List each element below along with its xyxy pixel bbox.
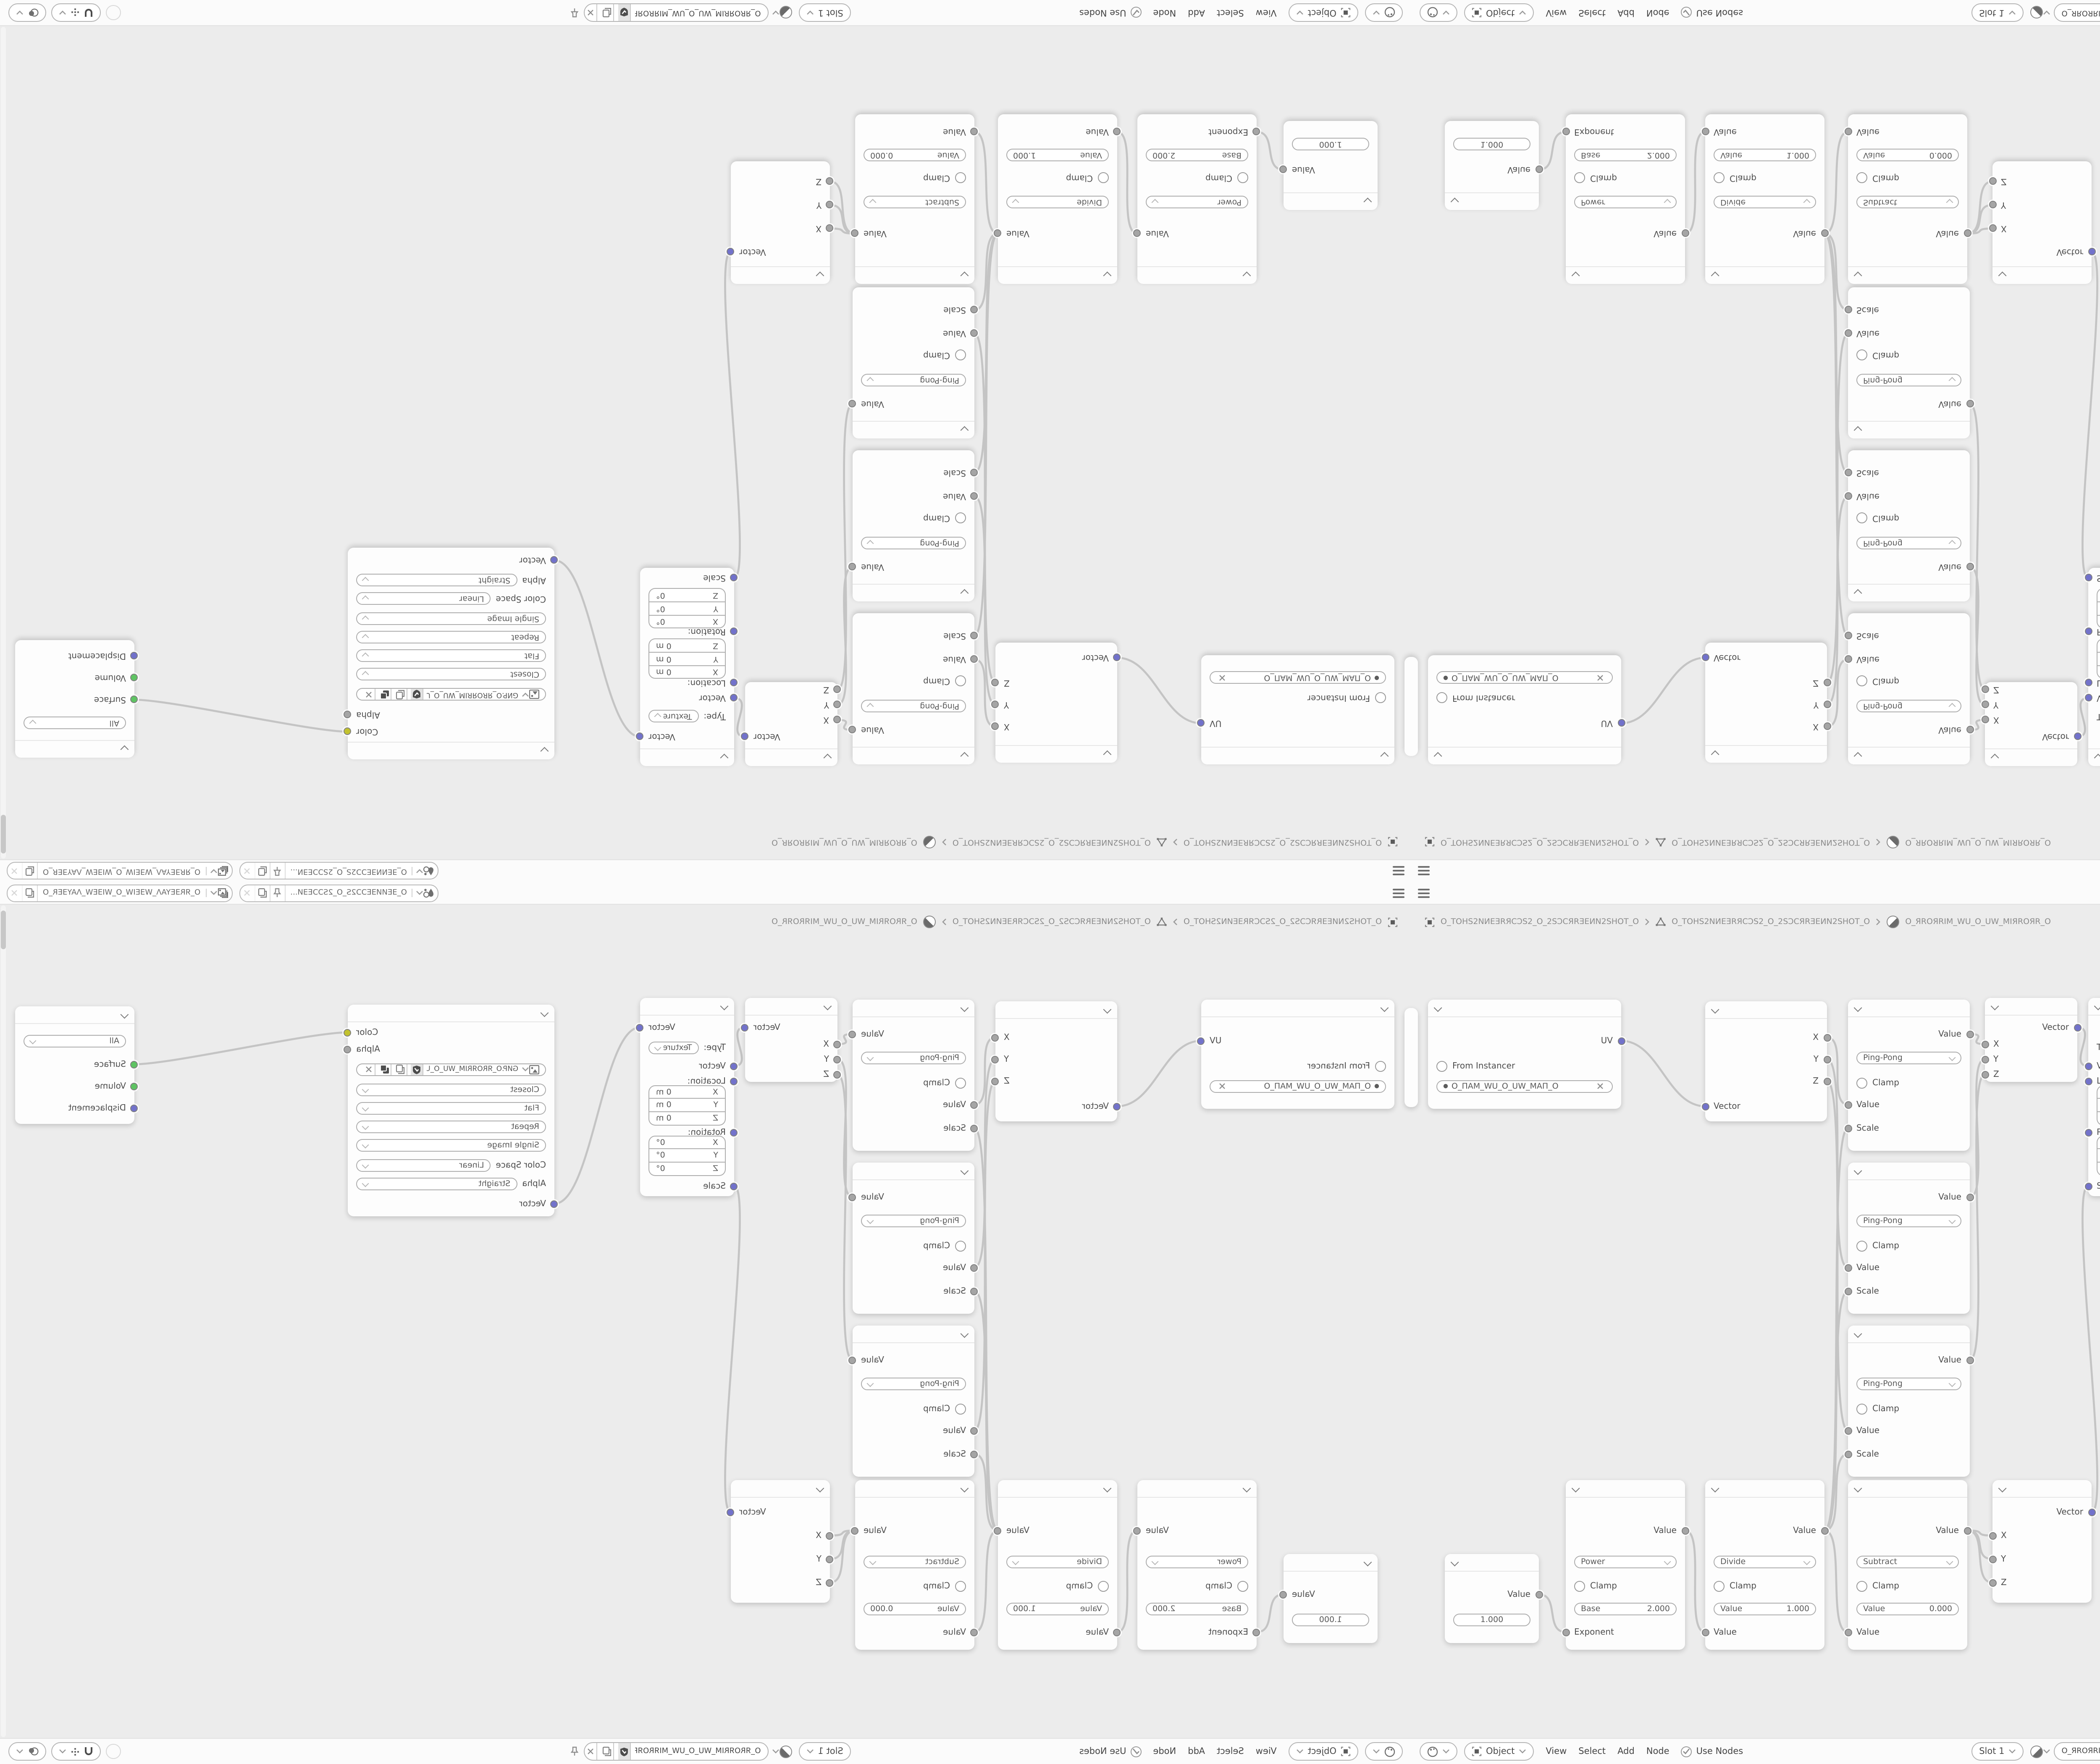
node-header[interactable] bbox=[995, 745, 1117, 763]
node-header[interactable] bbox=[1284, 1554, 1378, 1572]
number-field[interactable]: 1.000 bbox=[1453, 138, 1530, 151]
socket-vector[interactable] bbox=[1701, 1102, 1709, 1110]
socket-z[interactable] bbox=[1981, 1071, 1989, 1078]
node-header[interactable] bbox=[1705, 266, 1824, 284]
scrollbar-vertical[interactable] bbox=[1, 906, 6, 1737]
value-node[interactable]: Value1.000 bbox=[1284, 121, 1378, 210]
separate-xyz-node[interactable]: XYZVector bbox=[995, 1001, 1117, 1121]
combine-xyz-node[interactable]: VectorXYZ bbox=[1985, 998, 2077, 1082]
view-layer-unlink-button[interactable] bbox=[8, 863, 23, 879]
vector-component-field[interactable]: Z0° bbox=[2097, 588, 2100, 601]
clear-button[interactable] bbox=[1216, 672, 1228, 683]
separate-xyz-node[interactable]: XYZVector bbox=[1705, 643, 1827, 763]
node-header[interactable] bbox=[348, 1005, 554, 1022]
math-power-node[interactable]: ValuePowerClampBase2.000Exponent bbox=[1566, 114, 1685, 284]
clear-button[interactable] bbox=[1594, 672, 1606, 683]
enum-dropdown[interactable]: Subtract bbox=[864, 196, 966, 209]
node-header[interactable] bbox=[995, 1001, 1117, 1019]
scene-selector[interactable]: O_ƎEИИƎEƆƆ2S_O_2SƆƆEƎИ... bbox=[239, 884, 439, 902]
image-texture-node[interactable]: ColorAlphaGИP.O_ЯROЯRIM_WU_O_UW_MIЯROЯR_… bbox=[348, 548, 554, 759]
fake-user-button[interactable] bbox=[618, 4, 630, 21]
socket-value[interactable] bbox=[1963, 1527, 1971, 1534]
socket-value[interactable] bbox=[1821, 1527, 1828, 1534]
checkbox[interactable] bbox=[1856, 1580, 1867, 1591]
math-power-node[interactable]: ValuePowerClampBase2.000Exponent bbox=[1137, 114, 1257, 284]
material-slot-dropdown[interactable]: Slot 1 bbox=[1971, 1742, 2024, 1761]
number-field[interactable]: Base2.000 bbox=[1146, 149, 1248, 162]
partial-node[interactable] bbox=[1404, 657, 1411, 756]
node-header[interactable] bbox=[745, 748, 837, 766]
menu-select[interactable]: Select bbox=[1217, 1746, 1244, 1756]
vector-component-field[interactable]: Z0 m bbox=[2097, 638, 2100, 652]
view-layer-selector[interactable]: O_ЯRƎEYAΛ_WƎEIW_O_WIƎEW_ΛAYƎER_O bbox=[7, 884, 232, 902]
pin-button[interactable] bbox=[570, 8, 578, 18]
enum-dropdown[interactable]: All bbox=[24, 1034, 126, 1047]
enum-dropdown[interactable]: Power bbox=[1146, 1555, 1248, 1568]
socket-value[interactable] bbox=[1681, 1527, 1689, 1534]
number-field[interactable]: Value0.000 bbox=[864, 149, 966, 162]
editor-type-button[interactable] bbox=[1420, 1742, 1457, 1761]
scrollbar-vertical[interactable] bbox=[1, 27, 6, 858]
socket-vector[interactable] bbox=[2088, 1508, 2095, 1516]
menu-select[interactable]: Select bbox=[1217, 8, 1244, 18]
vector-component-field[interactable]: Y0° bbox=[648, 1149, 726, 1163]
scene-unlink-button[interactable] bbox=[240, 863, 255, 879]
math-pingpong-z-node[interactable]: ValuePing-PongClampValueScale bbox=[853, 1326, 974, 1477]
combine-xyz-bottom-node[interactable]: VectorXYZ bbox=[731, 161, 830, 284]
vector-component-field[interactable]: Y0 m bbox=[2097, 652, 2100, 665]
socket-z[interactable] bbox=[1989, 1579, 1996, 1586]
partial-node[interactable] bbox=[1404, 1008, 1411, 1107]
enum-dropdown[interactable]: Subtract bbox=[864, 1555, 966, 1568]
material-datablock-field[interactable]: O_ЯROЯRIM_WU_O_UW_MIЯROЯR_O bbox=[583, 1742, 768, 1761]
number-field[interactable]: Base2.000 bbox=[1574, 149, 1677, 162]
enum-dropdown[interactable]: Ping-Pong bbox=[861, 537, 966, 550]
node-header[interactable] bbox=[731, 1480, 830, 1498]
uv-map-node[interactable]: UVFrom InstancerO_ПAM_WU_O_UW_MAП_O bbox=[1201, 655, 1394, 764]
socket-value[interactable] bbox=[1844, 1427, 1852, 1434]
uv-map-selector[interactable]: O_ПAM_WU_O_UW_MAП_O bbox=[1210, 1080, 1386, 1092]
checkbox[interactable] bbox=[955, 513, 966, 524]
editor-overlays-dropdown[interactable] bbox=[8, 1742, 46, 1761]
use-nodes-checkbox[interactable]: Use Nodes bbox=[1681, 7, 1743, 18]
mapping-node[interactable]: VectorType:TextureVectorLocation:X0 mY0 … bbox=[2088, 568, 2100, 766]
enum-dropdown[interactable]: Single Image bbox=[356, 1139, 546, 1151]
checkbox[interactable] bbox=[955, 350, 966, 361]
node-header[interactable] bbox=[1137, 1480, 1257, 1498]
node-header[interactable] bbox=[1848, 266, 1967, 284]
vector-component-field[interactable]: Z0° bbox=[648, 1163, 726, 1176]
node-header[interactable] bbox=[640, 748, 734, 766]
view-layer-unlink-button[interactable] bbox=[8, 885, 23, 901]
vector-component-field[interactable]: Y0 m bbox=[648, 652, 726, 665]
use-nodes-checkbox[interactable]: Use Nodes bbox=[1079, 1746, 1142, 1757]
enum-dropdown[interactable]: Ping-Pong bbox=[1856, 1214, 1961, 1227]
number-field[interactable]: Value0.000 bbox=[864, 1602, 966, 1615]
math-subtract-node[interactable]: ValueSubtractClampValue0.000Value bbox=[1848, 114, 1967, 284]
node-header[interactable] bbox=[731, 266, 830, 284]
number-field[interactable]: Value1.000 bbox=[1006, 1602, 1109, 1615]
node-header[interactable] bbox=[640, 998, 734, 1016]
checkbox[interactable] bbox=[1436, 1060, 1447, 1071]
node-header[interactable] bbox=[1428, 1000, 1621, 1017]
checkbox[interactable] bbox=[1574, 173, 1585, 184]
number-field[interactable]: Value1.000 bbox=[1006, 149, 1109, 162]
separate-xyz-node[interactable]: XYZVector bbox=[995, 643, 1117, 763]
node-header[interactable] bbox=[853, 747, 974, 764]
enum-dropdown[interactable]: Ping-Pong bbox=[861, 1051, 966, 1064]
enum-dropdown[interactable]: Flat bbox=[356, 1102, 546, 1114]
node-header[interactable] bbox=[998, 1480, 1117, 1498]
number-field[interactable]: Value1.000 bbox=[1714, 1602, 1816, 1615]
node-header[interactable] bbox=[745, 998, 837, 1016]
math-divide-node[interactable]: ValueDivideClampValue1.000Value bbox=[998, 1480, 1117, 1650]
socket-value[interactable] bbox=[1701, 1628, 1709, 1636]
node-header[interactable] bbox=[1848, 1480, 1967, 1498]
number-field[interactable]: 1.000 bbox=[1292, 1613, 1369, 1626]
snapping-controls[interactable] bbox=[51, 3, 101, 22]
editor-type-button[interactable] bbox=[1365, 1742, 1403, 1761]
material-datablock-field[interactable]: O_ЯROЯRIM_WU_O_UW_MIЯROЯR_O bbox=[583, 3, 768, 22]
uv-map-selector[interactable]: O_ПAM_WU_O_UW_MAП_O bbox=[1436, 1080, 1613, 1092]
number-field[interactable]: Base2.000 bbox=[1146, 1602, 1248, 1615]
number-field[interactable]: Base2.000 bbox=[1574, 1602, 1677, 1615]
math-pingpong-x-node[interactable]: ValuePing-PongClampValueScale bbox=[853, 613, 974, 764]
node-header[interactable] bbox=[1705, 1480, 1824, 1498]
socket-value[interactable] bbox=[1844, 1264, 1852, 1271]
enum-dropdown[interactable]: Single Image bbox=[356, 613, 546, 625]
math-divide-node[interactable]: ValueDivideClampValue1.000Value bbox=[1705, 114, 1824, 284]
enum-dropdown[interactable]: Ping-Pong bbox=[1856, 374, 1961, 387]
socket-uv[interactable] bbox=[1617, 1037, 1625, 1045]
socket-location[interactable] bbox=[2084, 1077, 2092, 1085]
checkbox[interactable] bbox=[1375, 693, 1386, 703]
view-layer-copy-button[interactable] bbox=[23, 863, 38, 879]
checkbox[interactable] bbox=[955, 1403, 966, 1414]
menu-select[interactable]: Select bbox=[1578, 8, 1606, 18]
uv-map-selector[interactable]: O_ПAM_WU_O_UW_MAП_O bbox=[1210, 672, 1386, 684]
menu-node[interactable]: Node bbox=[1153, 1746, 1176, 1756]
enum-dropdown[interactable]: All bbox=[24, 717, 126, 730]
socket-value[interactable] bbox=[1844, 1101, 1852, 1108]
node-header[interactable] bbox=[853, 1326, 974, 1343]
value-node[interactable]: Value1.000 bbox=[1284, 1554, 1378, 1643]
copy-material-button[interactable] bbox=[601, 1743, 614, 1760]
value-node[interactable]: Value1.000 bbox=[1445, 1554, 1539, 1643]
math-subtract-node[interactable]: ValueSubtractClampValue0.000Value bbox=[855, 1480, 974, 1650]
use-nodes-checkbox[interactable]: Use Nodes bbox=[1681, 1746, 1743, 1757]
topbar-menu-button[interactable] bbox=[1418, 866, 1430, 876]
math-subtract-node[interactable]: ValueSubtractClampValue0.000Value bbox=[855, 114, 974, 284]
socket-value[interactable] bbox=[1844, 1628, 1852, 1636]
material-datablock-field[interactable]: O_ЯROЯRIM_WU_O_UW_MIЯROЯR_O bbox=[2054, 1742, 2100, 1761]
socket-value[interactable] bbox=[1966, 1030, 1974, 1038]
node-header[interactable] bbox=[1445, 1554, 1539, 1572]
checkbox[interactable] bbox=[1856, 173, 1867, 184]
fake-user-button[interactable] bbox=[618, 1743, 630, 1760]
node-header[interactable] bbox=[853, 1000, 974, 1017]
socket-scale[interactable] bbox=[1844, 1287, 1852, 1295]
menu-view[interactable]: View bbox=[1546, 1746, 1567, 1756]
unlink-image-button[interactable] bbox=[363, 1064, 375, 1075]
socket-scale[interactable] bbox=[2084, 1182, 2092, 1190]
enum-dropdown[interactable]: Subtract bbox=[1856, 1555, 1959, 1568]
node-header[interactable] bbox=[1985, 998, 2077, 1016]
node-header[interactable] bbox=[1566, 266, 1685, 284]
number-field[interactable]: Value1.000 bbox=[1714, 149, 1816, 162]
socket-z[interactable] bbox=[1823, 1077, 1831, 1085]
fake-user-button[interactable] bbox=[411, 1064, 423, 1075]
number-field[interactable]: Value0.000 bbox=[1856, 1602, 1959, 1615]
scene-copy-button[interactable] bbox=[255, 885, 270, 901]
image-texture-node[interactable]: ColorAlphaGИP.O_ЯROЯRIM_WU_O_UW_MIЯROЯR_… bbox=[348, 1005, 554, 1216]
vector-component-field[interactable]: Y0° bbox=[648, 601, 726, 615]
snapping-controls[interactable] bbox=[51, 1742, 101, 1761]
vector-component-field[interactable]: Z0 m bbox=[648, 638, 726, 652]
vector-component-field[interactable]: X0° bbox=[648, 615, 726, 628]
node-header[interactable] bbox=[1705, 745, 1827, 763]
value-node[interactable]: Value1.000 bbox=[1445, 121, 1539, 210]
editor-type-button[interactable] bbox=[1365, 3, 1403, 22]
vector-component-field[interactable]: Y0° bbox=[2097, 601, 2100, 615]
pack-image-button[interactable] bbox=[379, 689, 391, 700]
material-datablock-field[interactable]: O_ЯROЯRIM_WU_O_UW_MIЯROЯR_O bbox=[2054, 3, 2100, 22]
image-browse-button[interactable] bbox=[522, 690, 539, 699]
enum-dropdown[interactable]: Linear bbox=[356, 593, 491, 605]
enum-dropdown[interactable]: Repeat bbox=[356, 1120, 546, 1133]
number-field[interactable]: 1.000 bbox=[1453, 1613, 1530, 1626]
vector-component-field[interactable]: Y0° bbox=[2097, 1149, 2100, 1163]
copy-material-button[interactable] bbox=[601, 4, 614, 21]
combine-xyz-bottom-node[interactable]: VectorXYZ bbox=[1992, 161, 2092, 284]
new-image-button[interactable] bbox=[395, 1064, 407, 1075]
image-datablock-field[interactable]: GИP.O_ЯROЯRIM_WU_O_UW_MIЯROЯR_O.PNG bbox=[356, 688, 546, 701]
auto-render-button[interactable] bbox=[106, 1744, 121, 1759]
vector-component-field[interactable]: Y0 m bbox=[2097, 1099, 2100, 1112]
vector-component-field[interactable]: X0° bbox=[648, 1136, 726, 1149]
vector-component-field[interactable]: Z0 m bbox=[2097, 1112, 2100, 1126]
enum-dropdown[interactable]: Straight bbox=[356, 574, 517, 587]
socket-value[interactable] bbox=[1966, 1193, 1974, 1201]
socket-rotation[interactable] bbox=[2084, 1129, 2092, 1136]
socket-y[interactable] bbox=[1823, 1055, 1831, 1063]
node-header[interactable] bbox=[1992, 1480, 2092, 1498]
mapping-node[interactable]: VectorType:TextureVectorLocation:X0 mY0 … bbox=[640, 998, 734, 1196]
number-field[interactable]: Value0.000 bbox=[1856, 149, 1959, 162]
scene-selector[interactable]: O_ƎEИИƎEƆƆ2S_O_2SƆƆEƎИ... bbox=[239, 862, 439, 880]
enum-dropdown[interactable]: Straight bbox=[356, 1177, 517, 1190]
checkbox[interactable] bbox=[955, 173, 966, 184]
math-pingpong-z-node[interactable]: ValuePing-PongClampValueScale bbox=[853, 287, 974, 438]
checkbox[interactable] bbox=[1574, 1580, 1585, 1591]
checkbox[interactable] bbox=[1714, 1580, 1725, 1591]
math-subtract-node[interactable]: ValueSubtractClampValue0.000Value bbox=[1848, 1480, 1967, 1650]
node-header[interactable] bbox=[2088, 998, 2100, 1016]
enum-dropdown[interactable]: Power bbox=[1574, 196, 1677, 209]
node-header[interactable] bbox=[853, 1163, 974, 1180]
node-header[interactable] bbox=[1137, 266, 1257, 284]
scrollbar-thumb[interactable] bbox=[1, 911, 6, 949]
socket-x[interactable] bbox=[1989, 1532, 1996, 1539]
enum-dropdown[interactable]: Ping-Pong bbox=[1856, 537, 1961, 550]
image-browse-button[interactable] bbox=[522, 1065, 539, 1074]
node-header[interactable] bbox=[1428, 747, 1621, 764]
menu-node[interactable]: Node bbox=[1153, 8, 1176, 18]
enum-dropdown[interactable]: Closest bbox=[356, 668, 546, 681]
math-power-node[interactable]: ValuePowerClampBase2.000Exponent bbox=[1137, 1480, 1257, 1650]
socket-y[interactable] bbox=[1981, 1055, 1989, 1063]
socket-exponent[interactable] bbox=[1562, 1628, 1570, 1636]
socket-x[interactable] bbox=[1823, 1034, 1831, 1041]
new-image-button[interactable] bbox=[395, 689, 407, 700]
node-header[interactable] bbox=[2088, 748, 2100, 766]
checkbox[interactable] bbox=[955, 1077, 966, 1088]
node-header[interactable] bbox=[1848, 1000, 1970, 1017]
node-header[interactable] bbox=[1848, 584, 1970, 601]
scrollbar-thumb[interactable] bbox=[1, 815, 6, 853]
scene-copy-button[interactable] bbox=[255, 863, 270, 879]
node-header[interactable] bbox=[855, 1480, 974, 1498]
math-pingpong-x-node[interactable]: ValuePing-PongClampValueScale bbox=[1848, 1000, 1970, 1151]
socket-value[interactable] bbox=[1966, 1356, 1974, 1364]
node-header[interactable] bbox=[855, 266, 974, 284]
checkbox[interactable] bbox=[1098, 1580, 1109, 1591]
auto-render-button[interactable] bbox=[106, 5, 121, 20]
enum-dropdown[interactable]: Divide bbox=[1714, 196, 1816, 209]
checkbox[interactable] bbox=[1856, 676, 1867, 687]
socket-x[interactable] bbox=[1981, 1040, 1989, 1048]
uv-map-node[interactable]: UVFrom InstancerO_ПAM_WU_O_UW_MAП_O bbox=[1201, 1000, 1394, 1109]
enum-dropdown[interactable]: Repeat bbox=[356, 631, 546, 644]
separate-xyz-node[interactable]: XYZVector bbox=[1705, 1001, 1827, 1121]
enum-dropdown[interactable]: Ping-Pong bbox=[861, 374, 966, 387]
checkbox[interactable] bbox=[1237, 1580, 1248, 1591]
menu-select[interactable]: Select bbox=[1578, 1746, 1606, 1756]
node-header[interactable] bbox=[1284, 192, 1378, 210]
enum-dropdown[interactable]: Texture bbox=[648, 1041, 698, 1054]
topbar-menu-button[interactable] bbox=[1393, 866, 1404, 876]
math-pingpong-z-node[interactable]: ValuePing-PongClampValueScale bbox=[1848, 287, 1970, 438]
node-header[interactable] bbox=[853, 421, 974, 438]
mapping-node[interactable]: VectorType:TextureVectorLocation:X0 mY0 … bbox=[640, 568, 734, 766]
vector-component-field[interactable]: Y0 m bbox=[648, 1099, 726, 1112]
combine-xyz-bottom-node[interactable]: VectorXYZ bbox=[731, 1480, 830, 1603]
node-header[interactable] bbox=[853, 584, 974, 601]
node-header[interactable] bbox=[1445, 192, 1539, 210]
vector-component-field[interactable]: Z0° bbox=[2097, 1163, 2100, 1176]
enum-dropdown[interactable]: Ping-Pong bbox=[861, 700, 966, 713]
menu-add[interactable]: Add bbox=[1188, 8, 1205, 18]
socket-vector[interactable] bbox=[2084, 1062, 2092, 1070]
material-output-node[interactable]: AllSurfaceVolumeDisplacement bbox=[15, 640, 134, 758]
material-slot-dropdown[interactable]: Slot 1 bbox=[798, 1742, 850, 1761]
math-divide-node[interactable]: ValueDivideClampValue1.000Value bbox=[998, 114, 1117, 284]
topbar-menu-button[interactable] bbox=[1418, 888, 1430, 898]
enum-dropdown[interactable]: Ping-Pong bbox=[861, 1377, 966, 1390]
node-header[interactable] bbox=[1848, 421, 1970, 438]
combine-xyz-node[interactable]: VectorXYZ bbox=[745, 998, 837, 1082]
math-pingpong-x-node[interactable]: ValuePing-PongClampValueScale bbox=[853, 1000, 974, 1151]
use-nodes-checkbox[interactable]: Use Nodes bbox=[1079, 7, 1142, 18]
editor-type-button[interactable] bbox=[1420, 3, 1457, 22]
pin-button[interactable] bbox=[570, 1746, 578, 1756]
unlink-material-button[interactable] bbox=[584, 1743, 597, 1760]
pack-image-button[interactable] bbox=[379, 1064, 391, 1075]
uv-map-node[interactable]: UVFrom InstancerO_ПAM_WU_O_UW_MAП_O bbox=[1428, 1000, 1621, 1109]
enum-dropdown[interactable]: Closest bbox=[356, 1083, 546, 1096]
mapping-node[interactable]: VectorType:TextureVectorLocation:X0 mY0 … bbox=[2088, 998, 2100, 1196]
node-header[interactable] bbox=[1566, 1480, 1685, 1498]
checkbox[interactable] bbox=[955, 676, 966, 687]
socket-y[interactable] bbox=[1989, 1555, 1996, 1563]
vector-component-field[interactable]: Z0° bbox=[648, 588, 726, 601]
scene-pin-button[interactable] bbox=[270, 863, 285, 879]
socket-scale[interactable] bbox=[1844, 1450, 1852, 1458]
checkbox[interactable] bbox=[1856, 1077, 1867, 1088]
clear-button[interactable] bbox=[1216, 1081, 1228, 1092]
enum-dropdown[interactable]: Divide bbox=[1714, 1555, 1816, 1568]
enum-dropdown[interactable]: Ping-Pong bbox=[1856, 700, 1961, 713]
checkbox[interactable] bbox=[1714, 173, 1725, 184]
material-output-node[interactable]: AllSurfaceVolumeDisplacement bbox=[15, 1006, 134, 1124]
checkbox[interactable] bbox=[1436, 693, 1447, 703]
menu-add[interactable]: Add bbox=[1617, 8, 1635, 18]
enum-dropdown[interactable]: Ping-Pong bbox=[861, 1214, 966, 1227]
enum-dropdown[interactable]: Divide bbox=[1006, 196, 1109, 209]
shader-mode-dropdown[interactable]: Object bbox=[1289, 1742, 1358, 1761]
vector-component-field[interactable]: X0 m bbox=[648, 1085, 726, 1099]
node-header[interactable] bbox=[1201, 1000, 1394, 1017]
node-header[interactable] bbox=[1705, 1001, 1827, 1019]
material-slot-dropdown[interactable]: Slot 1 bbox=[798, 3, 850, 22]
enum-dropdown[interactable]: Flat bbox=[356, 650, 546, 662]
node-header[interactable] bbox=[348, 742, 554, 759]
vector-component-field[interactable]: Z0 m bbox=[648, 1112, 726, 1126]
material-slot-dropdown[interactable]: Slot 1 bbox=[1971, 3, 2024, 22]
checkbox[interactable] bbox=[1856, 1403, 1867, 1414]
uv-map-node[interactable]: UVFrom InstancerO_ПAM_WU_O_UW_MAП_O bbox=[1428, 655, 1621, 764]
menu-view[interactable]: View bbox=[1256, 1746, 1277, 1756]
menu-node[interactable]: Node bbox=[1646, 8, 1669, 18]
checkbox[interactable] bbox=[1856, 1240, 1867, 1251]
menu-node[interactable]: Node bbox=[1646, 1746, 1669, 1756]
checkbox[interactable] bbox=[1856, 513, 1867, 524]
enum-dropdown[interactable]: Ping-Pong bbox=[1856, 1377, 1961, 1390]
scene-unlink-button[interactable] bbox=[240, 885, 255, 901]
checkbox[interactable] bbox=[1237, 173, 1248, 184]
menu-add[interactable]: Add bbox=[1188, 1746, 1205, 1756]
partial-node[interactable] bbox=[1411, 1008, 1418, 1107]
math-pingpong-y-node[interactable]: ValuePing-PongClampValueScale bbox=[853, 450, 974, 601]
shader-mode-dropdown[interactable]: Object bbox=[1464, 1742, 1534, 1761]
view-layer-selector[interactable]: O_ЯRƎEYAΛ_WƎEIW_O_WIƎEW_ΛAYƎER_O bbox=[7, 862, 232, 880]
menu-view[interactable]: View bbox=[1546, 8, 1567, 18]
combine-xyz-node[interactable]: VectorXYZ bbox=[745, 682, 837, 766]
shader-mode-dropdown[interactable]: Object bbox=[1289, 3, 1358, 22]
checkbox[interactable] bbox=[1375, 1060, 1386, 1071]
checkbox[interactable] bbox=[955, 1240, 966, 1251]
math-pingpong-x-node[interactable]: ValuePing-PongClampValueScale bbox=[1848, 613, 1970, 764]
unlink-image-button[interactable] bbox=[363, 689, 375, 700]
node-header[interactable] bbox=[1848, 1163, 1970, 1180]
enum-dropdown[interactable]: Divide bbox=[1006, 1555, 1109, 1568]
math-pingpong-z-node[interactable]: ValuePing-PongClampValueScale bbox=[1848, 1326, 1970, 1477]
node-header[interactable] bbox=[1992, 266, 2092, 284]
fake-user-button[interactable] bbox=[411, 689, 423, 700]
checkbox[interactable] bbox=[1098, 173, 1109, 184]
editor-overlays-dropdown[interactable] bbox=[8, 3, 46, 22]
enum-dropdown[interactable]: Subtract bbox=[1856, 196, 1959, 209]
